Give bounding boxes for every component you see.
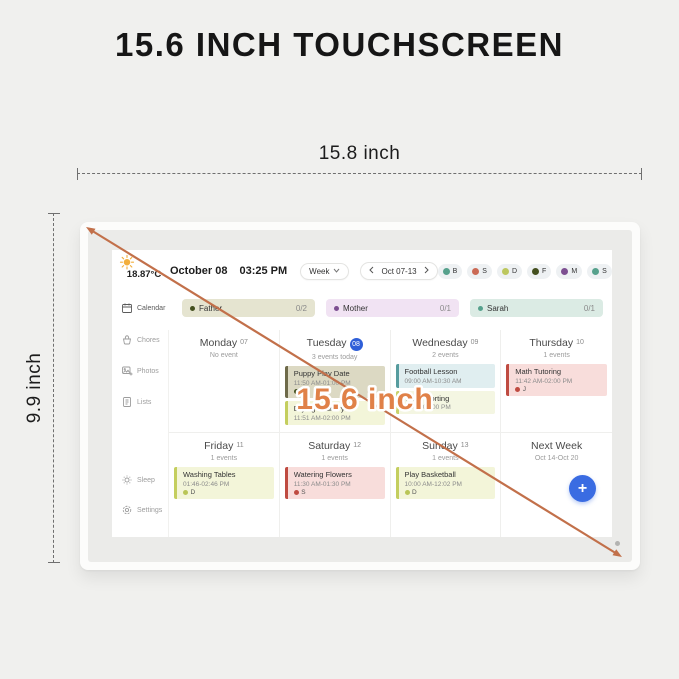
person-initial: J xyxy=(523,386,526,393)
camera-dot xyxy=(615,541,620,546)
day-number: 07 xyxy=(240,339,248,346)
progress-dot-icon xyxy=(478,306,483,311)
today-badge: 08 xyxy=(350,338,363,351)
product-image: 15.6 INCH TOUCHSCREEN 15.8 inch 9.9 inch… xyxy=(0,0,679,679)
day-header: Friday11 xyxy=(169,440,279,452)
person-dot-icon xyxy=(183,490,188,495)
member-initial: D xyxy=(512,268,517,275)
event-person: D xyxy=(183,489,269,496)
event-card[interactable]: Football Lesson09:00 AM-10:30 AM xyxy=(396,364,496,388)
progress-count: 0/1 xyxy=(584,304,595,313)
event-time: 10:00 AM-12:02 PM xyxy=(405,481,491,488)
chores-icon xyxy=(121,334,133,346)
sidebar-item-label: Sleep xyxy=(137,477,155,484)
event-title: Drying Laundry xyxy=(294,404,380,413)
day-header: Next Week xyxy=(501,440,612,452)
event-time: 11:42 AM-02:00 PM xyxy=(515,378,602,385)
day-header: Tuesday08 xyxy=(280,337,390,351)
day-subtitle: Oct 14-Oct 20 xyxy=(501,455,612,462)
event-time: 11:30 AM-01:30 PM xyxy=(294,481,380,488)
event-card[interactable]: Drying Laundry11:51 AM-02:00 PM xyxy=(285,401,385,425)
sidebar-item-label: Lists xyxy=(137,399,151,406)
day-header: Wednesday09 xyxy=(391,337,501,349)
temperature-reading: 18.87°C xyxy=(118,269,170,280)
chevron-left-icon[interactable] xyxy=(369,266,374,276)
person-initial: D xyxy=(191,489,196,496)
sidebar-item-chores[interactable]: Chores xyxy=(121,334,160,346)
day-events: Washing Tables01:46-02:46 PMD xyxy=(169,467,279,499)
member-badge[interactable]: D xyxy=(497,264,522,279)
day-cell-thursday: Thursday101 eventsMath Tutoring11:42 AM-… xyxy=(501,330,612,433)
sidebar-item-photos[interactable]: Photos xyxy=(121,365,159,377)
member-badge[interactable]: S xyxy=(587,264,612,279)
calendar-header: October 08 03:25 PM Week Oct 07-13 xyxy=(170,256,608,286)
device-frame: 18.87°C October 08 03:25 PM Week Oct 07-… xyxy=(80,222,640,570)
chevron-right-icon[interactable] xyxy=(424,266,429,276)
day-events: Football Lesson09:00 AM-10:30 AMTrash So… xyxy=(391,364,501,414)
person-initial: S xyxy=(301,489,305,496)
progress-dot-icon xyxy=(334,306,339,311)
person-dot-icon xyxy=(405,490,410,495)
person-initial: D xyxy=(412,489,417,496)
day-number: 09 xyxy=(471,339,479,346)
member-initial: F xyxy=(542,268,546,275)
member-initial: S xyxy=(482,268,487,275)
chevron-down-icon xyxy=(333,267,340,275)
day-events: Math Tutoring11:42 AM-02:00 PMJ xyxy=(501,364,612,396)
event-card[interactable]: Washing Tables01:46-02:46 PMD xyxy=(174,467,274,499)
day-header: Monday07 xyxy=(169,337,279,349)
event-card[interactable]: Play Basketball10:00 AM-12:02 PMD xyxy=(396,467,496,499)
day-header: Saturday12 xyxy=(280,440,390,452)
event-person: F xyxy=(294,388,380,395)
sidebar: CalendarChoresPhotosListsSleepSettings xyxy=(112,290,168,537)
day-subtitle: 1 events xyxy=(280,455,390,462)
member-dot-icon xyxy=(592,268,599,275)
day-number: 11 xyxy=(236,442,243,449)
person-dot-icon xyxy=(294,490,299,495)
event-title: Play Basketball xyxy=(405,470,491,479)
day-subtitle: 1 events xyxy=(169,455,279,462)
day-header: Sunday13 xyxy=(391,440,501,452)
day-name: Friday xyxy=(204,440,233,452)
day-events: Watering Flowers11:30 AM-01:30 PMS xyxy=(280,467,390,499)
member-badge[interactable]: F xyxy=(527,264,551,279)
sleep-icon xyxy=(121,474,133,486)
member-initial: S xyxy=(602,268,607,275)
width-dimension-label: 15.8 inch xyxy=(77,143,642,165)
person-dot-icon xyxy=(294,389,299,394)
event-title: Puppy Play Date xyxy=(294,369,380,378)
event-title: Watering Flowers xyxy=(294,470,380,479)
event-time: 09:00 AM-10:30 AM xyxy=(405,378,491,385)
sidebar-item-settings[interactable]: Settings xyxy=(121,504,162,516)
member-dot-icon xyxy=(472,268,479,275)
event-title: Trash Sorting xyxy=(405,394,491,403)
member-initial: M xyxy=(571,268,577,275)
width-dimension-line xyxy=(77,173,642,174)
event-title: Football Lesson xyxy=(405,367,491,376)
event-time: 11:50 AM-01:00 PM xyxy=(294,380,380,387)
weather-widget: 18.87°C xyxy=(118,253,170,280)
view-selector-label: Week xyxy=(309,267,329,276)
progress-dot-icon xyxy=(190,306,195,311)
height-dimension-line xyxy=(53,213,54,563)
day-subtitle: 1 events xyxy=(391,455,501,462)
event-card[interactable]: Trash Sorting01:00-02:00 PM xyxy=(396,391,496,415)
day-subtitle: 2 events xyxy=(391,352,501,359)
day-subtitle: 3 events today xyxy=(280,354,390,361)
sidebar-item-label: Calendar xyxy=(137,305,165,312)
member-badge[interactable]: S xyxy=(467,264,492,279)
progress-count: 0/1 xyxy=(440,304,451,313)
week-range-label: Oct 07-13 xyxy=(381,267,416,276)
event-person: D xyxy=(405,489,491,496)
sidebar-item-label: Photos xyxy=(137,368,159,375)
member-badges: BSDFMS xyxy=(438,264,612,279)
member-dot-icon xyxy=(561,268,568,275)
sidebar-item-sleep[interactable]: Sleep xyxy=(121,474,155,486)
event-title: Math Tutoring xyxy=(515,367,602,376)
event-title: Washing Tables xyxy=(183,470,269,479)
day-cell-tuesday: Tuesday083 events todayPuppy Play Date11… xyxy=(280,330,391,433)
day-number: 13 xyxy=(461,442,469,449)
day-events: Puppy Play Date11:50 AM-01:00 PMFDrying … xyxy=(280,366,390,425)
width-dimension: 15.8 inch xyxy=(77,143,642,174)
week-grid: Monday07No eventTuesday083 events todayP… xyxy=(168,330,612,537)
view-selector[interactable]: Week xyxy=(300,263,349,280)
event-person: J xyxy=(515,386,602,393)
progress-count: 0/2 xyxy=(296,304,307,313)
sidebar-item-lists[interactable]: Lists xyxy=(121,396,151,408)
day-name: Sunday xyxy=(422,440,458,452)
event-time: 01:00-02:00 PM xyxy=(405,404,491,411)
day-name: Thursday xyxy=(529,337,573,349)
progress-chip-father[interactable]: Father0/2 xyxy=(182,299,315,317)
member-progress-row: Father0/2Mother0/1Sarah0/1 xyxy=(182,299,603,317)
day-cell-sunday: Sunday131 eventsPlay Basketball10:00 AM-… xyxy=(391,433,502,537)
sun-icon xyxy=(118,253,170,270)
day-cell-next-week: Next WeekOct 14-Oct 20+ xyxy=(501,433,612,537)
product-title: 15.6 INCH TOUCHSCREEN xyxy=(0,26,679,64)
member-dot-icon xyxy=(443,268,450,275)
day-subtitle: 1 events xyxy=(501,352,612,359)
progress-name: Mother xyxy=(343,304,368,313)
event-card[interactable]: Puppy Play Date11:50 AM-01:00 PMF xyxy=(285,366,385,398)
event-card[interactable]: Math Tutoring11:42 AM-02:00 PMJ xyxy=(506,364,607,396)
day-name: Next Week xyxy=(531,440,582,452)
day-name: Wednesday xyxy=(412,337,467,349)
event-card[interactable]: Watering Flowers11:30 AM-01:30 PMS xyxy=(285,467,385,499)
current-time: 03:25 PM xyxy=(239,265,287,277)
day-cell-friday: Friday111 eventsWashing Tables01:46-02:4… xyxy=(169,433,280,537)
lists-icon xyxy=(121,396,133,408)
device-screen: 18.87°C October 08 03:25 PM Week Oct 07-… xyxy=(112,250,612,537)
day-cell-saturday: Saturday121 eventsWatering Flowers11:30 … xyxy=(280,433,391,537)
height-dimension-label: 9.9 inch xyxy=(24,353,46,424)
day-name: Saturday xyxy=(308,440,350,452)
member-badge[interactable]: B xyxy=(438,264,463,279)
calendar-icon xyxy=(121,302,133,314)
day-name: Monday xyxy=(200,337,237,349)
sidebar-item-label: Settings xyxy=(137,507,162,514)
progress-chip-sarah[interactable]: Sarah0/1 xyxy=(470,299,603,317)
photos-icon xyxy=(121,365,133,377)
add-event-button[interactable]: + xyxy=(569,475,596,502)
week-range-selector: Oct 07-13 xyxy=(360,262,437,280)
member-dot-icon xyxy=(532,268,539,275)
day-number: 12 xyxy=(353,442,361,449)
day-cell-wednesday: Wednesday092 eventsFootball Lesson09:00 … xyxy=(391,330,502,433)
event-time: 11:51 AM-02:00 PM xyxy=(294,415,380,422)
person-initial: F xyxy=(301,388,305,395)
height-dimension: 9.9 inch xyxy=(48,213,60,563)
sidebar-item-calendar[interactable]: Calendar xyxy=(121,302,165,314)
day-cell-monday: Monday07No event xyxy=(169,330,280,433)
day-events: Play Basketball10:00 AM-12:02 PMD xyxy=(391,467,501,499)
current-date: October 08 xyxy=(170,265,227,277)
day-subtitle: No event xyxy=(169,352,279,359)
person-dot-icon xyxy=(515,387,520,392)
progress-name: Sarah xyxy=(487,304,508,313)
day-number: 10 xyxy=(576,339,584,346)
day-header: Thursday10 xyxy=(501,337,612,349)
member-initial: B xyxy=(453,268,458,275)
event-person: S xyxy=(294,489,380,496)
day-name: Tuesday xyxy=(307,337,347,349)
event-time: 01:46-02:46 PM xyxy=(183,481,269,488)
member-dot-icon xyxy=(502,268,509,275)
settings-icon xyxy=(121,504,133,516)
progress-chip-mother[interactable]: Mother0/1 xyxy=(326,299,459,317)
progress-name: Father xyxy=(199,304,222,313)
sidebar-item-label: Chores xyxy=(137,337,160,344)
member-badge[interactable]: M xyxy=(556,264,582,279)
